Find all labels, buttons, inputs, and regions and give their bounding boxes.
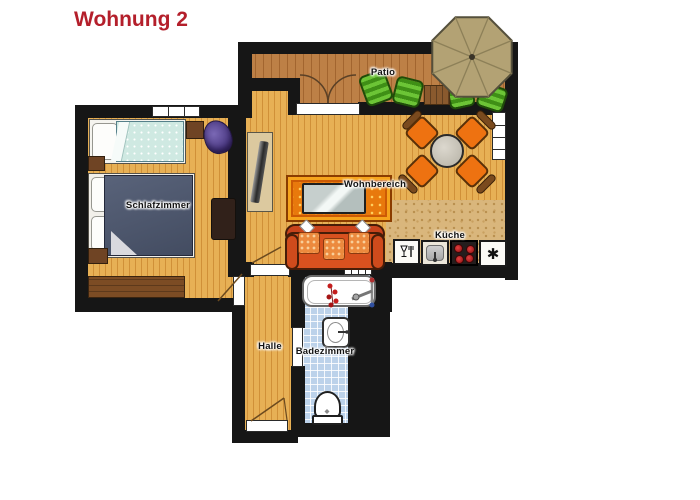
- sofa-armrest: [371, 234, 385, 270]
- hall-living-door-leaf: [250, 264, 290, 276]
- sink-basin: [426, 245, 444, 261]
- room-label-wohnbereich: Wohnbereich: [340, 180, 410, 190]
- window-mullion: [184, 107, 185, 116]
- tv-cabinet: [247, 132, 273, 212]
- dining-table: [430, 134, 464, 168]
- room-label-halle: Halle: [250, 342, 290, 352]
- room-label-kueche: Küche: [425, 231, 475, 241]
- toilet-tank: [312, 415, 343, 425]
- sofa-pillow: [323, 238, 345, 260]
- wall-segment: [291, 423, 390, 437]
- double-bed-blanket: [104, 175, 193, 256]
- bedroom-door-leaf: [233, 276, 245, 306]
- toilet-bowl: [314, 391, 341, 418]
- bedroom-window: [152, 106, 200, 117]
- floor-plan-canvas: Wohnung 2: [0, 0, 700, 500]
- sun-umbrella: [427, 12, 517, 102]
- bedside-mat: [211, 198, 236, 240]
- patio-french-door: [296, 103, 360, 115]
- sofa-armrest: [285, 234, 299, 270]
- hall-floor: [242, 272, 295, 432]
- freezer-unit: ✱: [479, 240, 507, 267]
- plan-title: Wohnung 2: [74, 8, 188, 32]
- tv: [250, 141, 269, 204]
- bathtub-inner: [307, 280, 373, 304]
- nightstand: [88, 156, 105, 171]
- dishwasher-unit: [393, 239, 420, 265]
- nightstand: [88, 248, 108, 264]
- room-label-patio: Patio: [362, 68, 404, 78]
- wall-segment: [75, 298, 236, 312]
- window-mullion: [493, 149, 505, 150]
- washbasin: [322, 317, 350, 348]
- blanket-fold: [111, 231, 137, 255]
- sofa: [285, 224, 385, 270]
- entrance-door-leaf: [246, 420, 288, 432]
- stove-unit: [450, 240, 478, 266]
- bathtub: [302, 275, 376, 307]
- wall-segment: [75, 105, 88, 312]
- freezer-icon: ✱: [487, 245, 500, 263]
- single-bed-blanket: [116, 121, 184, 162]
- room-label-badezimmer: Badezimmer: [292, 347, 358, 357]
- living-room-window: [492, 112, 506, 160]
- window-mullion: [168, 107, 169, 116]
- stove-burner: [466, 245, 475, 254]
- wall-segment: [348, 305, 390, 430]
- stove-burner: [454, 244, 463, 253]
- window-mullion: [493, 137, 505, 138]
- dishwasher-icon: [398, 244, 416, 260]
- wall-segment: [232, 306, 245, 443]
- nightstand: [186, 121, 204, 139]
- stove-burner: [455, 255, 464, 264]
- stove-burner: [465, 254, 474, 263]
- toilet: [311, 391, 344, 425]
- room-label-schlafzimmer: Schlafzimmer: [120, 201, 196, 211]
- sofa-pillow: [348, 232, 370, 254]
- dresser: [88, 276, 185, 298]
- washbasin-bowl: [327, 322, 344, 343]
- sofa-pillow: [298, 232, 320, 254]
- sink-unit: [421, 240, 449, 266]
